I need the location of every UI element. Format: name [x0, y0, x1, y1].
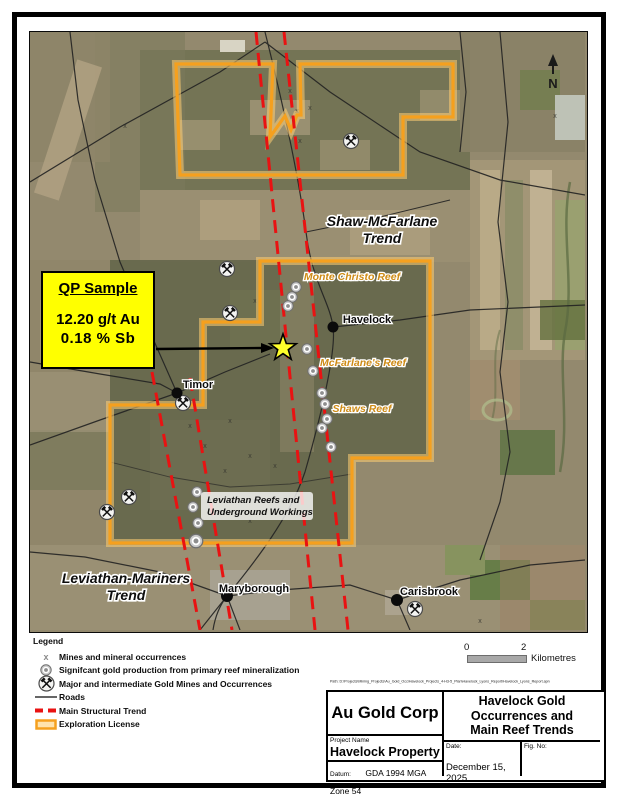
- legend-item-significant-gold: Signifcant gold production from primary …: [33, 664, 363, 678]
- svg-text:N: N: [548, 76, 557, 91]
- svg-text:Trend: Trend: [363, 230, 402, 246]
- svg-text:x: x: [308, 105, 312, 112]
- title-block: Au Gold Corp Havelock Gold Occurrences a…: [326, 690, 606, 782]
- project-name-label: Project Name: [330, 737, 440, 744]
- company-name: Au Gold Corp: [331, 704, 438, 723]
- project-name: Havelock Property: [330, 745, 440, 759]
- svg-text:x: x: [248, 453, 252, 460]
- svg-text:Leviathan Reefs and: Leviathan Reefs and: [207, 495, 300, 506]
- mine-icon: [38, 675, 55, 692]
- svg-text:x: x: [203, 443, 207, 450]
- legend-item-exploration-license: Exploration License: [33, 718, 363, 732]
- legend: Legend x Mines and mineral occurrences S…: [33, 636, 363, 731]
- trend-dash-icon: [35, 708, 57, 713]
- svg-text:Shaws Reef: Shaws Reef: [333, 403, 393, 415]
- date-value: December 15, 2025: [446, 762, 518, 784]
- svg-text:Trend: Trend: [107, 587, 146, 603]
- date-label: Date:: [446, 743, 518, 750]
- qp-assay-gold: 12.20 g/t Au: [43, 311, 153, 328]
- svg-text:x: x: [288, 88, 292, 95]
- svg-text:x: x: [298, 138, 302, 145]
- legend-item-occurrences: x Mines and mineral occurrences: [33, 650, 363, 664]
- legend-item-major-mines: Major and intermediate Gold Mines and Oc…: [33, 677, 363, 691]
- svg-text:Havelock: Havelock: [343, 314, 392, 326]
- svg-text:Monte Christo Reef: Monte Christo Reef: [304, 271, 402, 283]
- legend-item-roads: Roads: [33, 691, 363, 705]
- legend-title: Legend: [33, 636, 363, 646]
- figure-title-cell: Havelock Gold Occurrences and Main Reef …: [444, 692, 600, 742]
- company-name-cell: Au Gold Corp: [328, 692, 444, 736]
- svg-text:Maryborough: Maryborough: [219, 583, 290, 595]
- svg-text:Leviathan-Mariners: Leviathan-Mariners: [62, 570, 191, 586]
- datum-label: Datum:: [330, 771, 351, 778]
- svg-text:McFarlane's Reef: McFarlane's Reef: [320, 357, 407, 369]
- legend-item-structural-trend: Main Structural Trend: [33, 704, 363, 718]
- scale-start-label: 0: [464, 642, 469, 653]
- svg-text:x: x: [123, 123, 127, 130]
- scale-unit-label: Kilometres: [531, 653, 576, 664]
- qp-sample-callout: QP Sample 12.20 g/t Au 0.18 % Sb: [41, 271, 155, 369]
- svg-text:x: x: [223, 468, 227, 475]
- svg-text:x: x: [228, 418, 232, 425]
- svg-text:Timor: Timor: [183, 379, 214, 391]
- road-line-icon: [35, 695, 57, 699]
- file-path-note: Path: D:\Projects\Mining_Projects\Au_Gol…: [330, 680, 590, 684]
- figure-title: Havelock Gold Occurrences and Main Reef …: [462, 694, 582, 738]
- svg-text:x: x: [188, 423, 192, 430]
- svg-text:x: x: [553, 113, 557, 120]
- license-box-icon: [35, 719, 57, 730]
- x-marker-icon: x: [43, 652, 48, 662]
- figure-page: xxx xxx xxx xxx xxx xxx: [0, 0, 618, 800]
- fig-no-cell: Fig. No:: [522, 742, 600, 776]
- qp-assay-antimony: 0.18 % Sb: [43, 330, 153, 347]
- svg-text:x: x: [273, 463, 277, 470]
- qp-sample-title: QP Sample: [43, 280, 153, 297]
- fig-no-label: Fig. No:: [524, 743, 598, 750]
- datum-cell: Datum: GDA 1994 MGA Zone 54: [328, 762, 444, 776]
- scale-bar-graphic: [467, 655, 527, 663]
- workings-label: Leviathan Reefs and Underground Workings: [201, 492, 313, 520]
- project-name-cell: Project Name Havelock Property: [328, 736, 444, 762]
- svg-text:Carisbrook: Carisbrook: [400, 586, 459, 598]
- scale-end-label: 2: [521, 642, 526, 653]
- scale-bar: 0 2 Kilometres: [455, 642, 595, 668]
- svg-text:Underground Workings: Underground Workings: [207, 507, 313, 518]
- date-cell: Date: December 15, 2025: [444, 742, 522, 776]
- svg-text:x: x: [478, 618, 482, 625]
- svg-text:Shaw-McFarlane: Shaw-McFarlane: [327, 213, 438, 229]
